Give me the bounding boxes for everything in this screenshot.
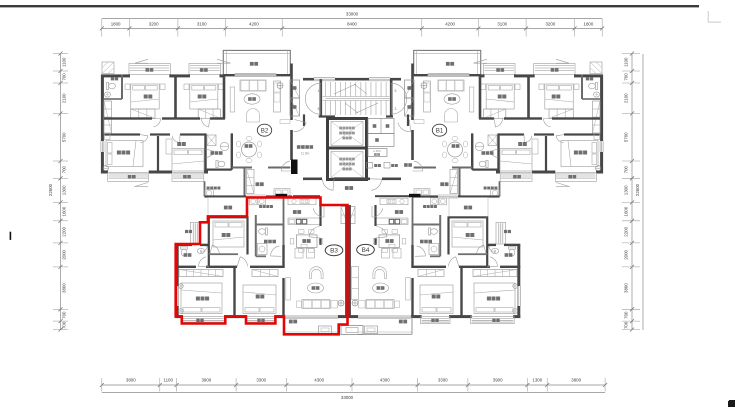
svg-text:3200: 3200: [545, 22, 555, 27]
svg-text:B1: B1: [436, 127, 444, 134]
svg-text:B3: B3: [330, 248, 338, 255]
svg-text:11.9m: 11.9m: [301, 152, 310, 156]
svg-text:1300: 1300: [62, 185, 67, 195]
svg-text:C-25.2: C-25.2: [373, 149, 381, 153]
svg-text:2100: 2100: [624, 93, 629, 103]
svg-text:3200: 3200: [149, 22, 159, 27]
svg-text:1600: 1600: [62, 206, 67, 216]
svg-text:3100: 3100: [197, 22, 207, 27]
svg-text:2200: 2200: [624, 226, 629, 236]
svg-text:2000: 2000: [624, 249, 629, 259]
svg-text:3: 3: [395, 107, 397, 111]
svg-text:22600: 22600: [635, 183, 640, 196]
svg-text:700: 700: [62, 73, 67, 81]
svg-text:1300: 1300: [624, 185, 629, 195]
svg-text:700: 700: [624, 311, 629, 319]
svg-text:1800: 1800: [111, 22, 121, 27]
svg-text:5: 5: [395, 89, 397, 93]
svg-text:3300: 3300: [256, 378, 266, 383]
svg-text:1100: 1100: [163, 378, 173, 383]
svg-text:3100: 3100: [497, 22, 507, 27]
svg-text:4300: 4300: [380, 378, 390, 383]
svg-text:3800: 3800: [624, 283, 629, 293]
svg-text:2000: 2000: [62, 249, 67, 259]
svg-text:B4: B4: [362, 247, 370, 254]
svg-text:4200: 4200: [249, 22, 259, 27]
svg-text:1800: 1800: [584, 22, 594, 27]
svg-text:1: 1: [318, 89, 320, 93]
svg-text:1300: 1300: [532, 378, 542, 383]
svg-text:3800: 3800: [126, 378, 136, 383]
svg-text:700: 700: [624, 165, 629, 173]
svg-text:5700: 5700: [62, 132, 67, 142]
svg-text:5: 5: [318, 107, 320, 111]
svg-text:4200: 4200: [445, 22, 455, 27]
svg-text:700: 700: [62, 311, 67, 319]
svg-text:8400: 8400: [347, 22, 357, 27]
svg-text:3900: 3900: [493, 378, 503, 383]
svg-text:33000: 33000: [341, 395, 354, 400]
svg-text:5700: 5700: [624, 132, 629, 142]
svg-text:2200: 2200: [62, 226, 67, 236]
svg-text:33000: 33000: [346, 11, 359, 16]
svg-text:3800: 3800: [571, 378, 581, 383]
svg-text:700: 700: [62, 321, 67, 329]
svg-text:2100: 2100: [62, 93, 67, 103]
svg-text:700: 700: [624, 73, 629, 81]
svg-text:700: 700: [62, 165, 67, 173]
svg-text:3800: 3800: [62, 283, 67, 293]
svg-text:4300: 4300: [314, 378, 324, 383]
svg-text:3900: 3900: [201, 378, 211, 383]
svg-text:B2: B2: [261, 127, 269, 134]
svg-text:1100: 1100: [624, 57, 629, 67]
svg-text:700: 700: [624, 321, 629, 329]
svg-text:3300: 3300: [438, 378, 448, 383]
svg-text:1600: 1600: [624, 206, 629, 216]
svg-text:22600: 22600: [48, 183, 53, 196]
svg-text:1100: 1100: [62, 57, 67, 67]
